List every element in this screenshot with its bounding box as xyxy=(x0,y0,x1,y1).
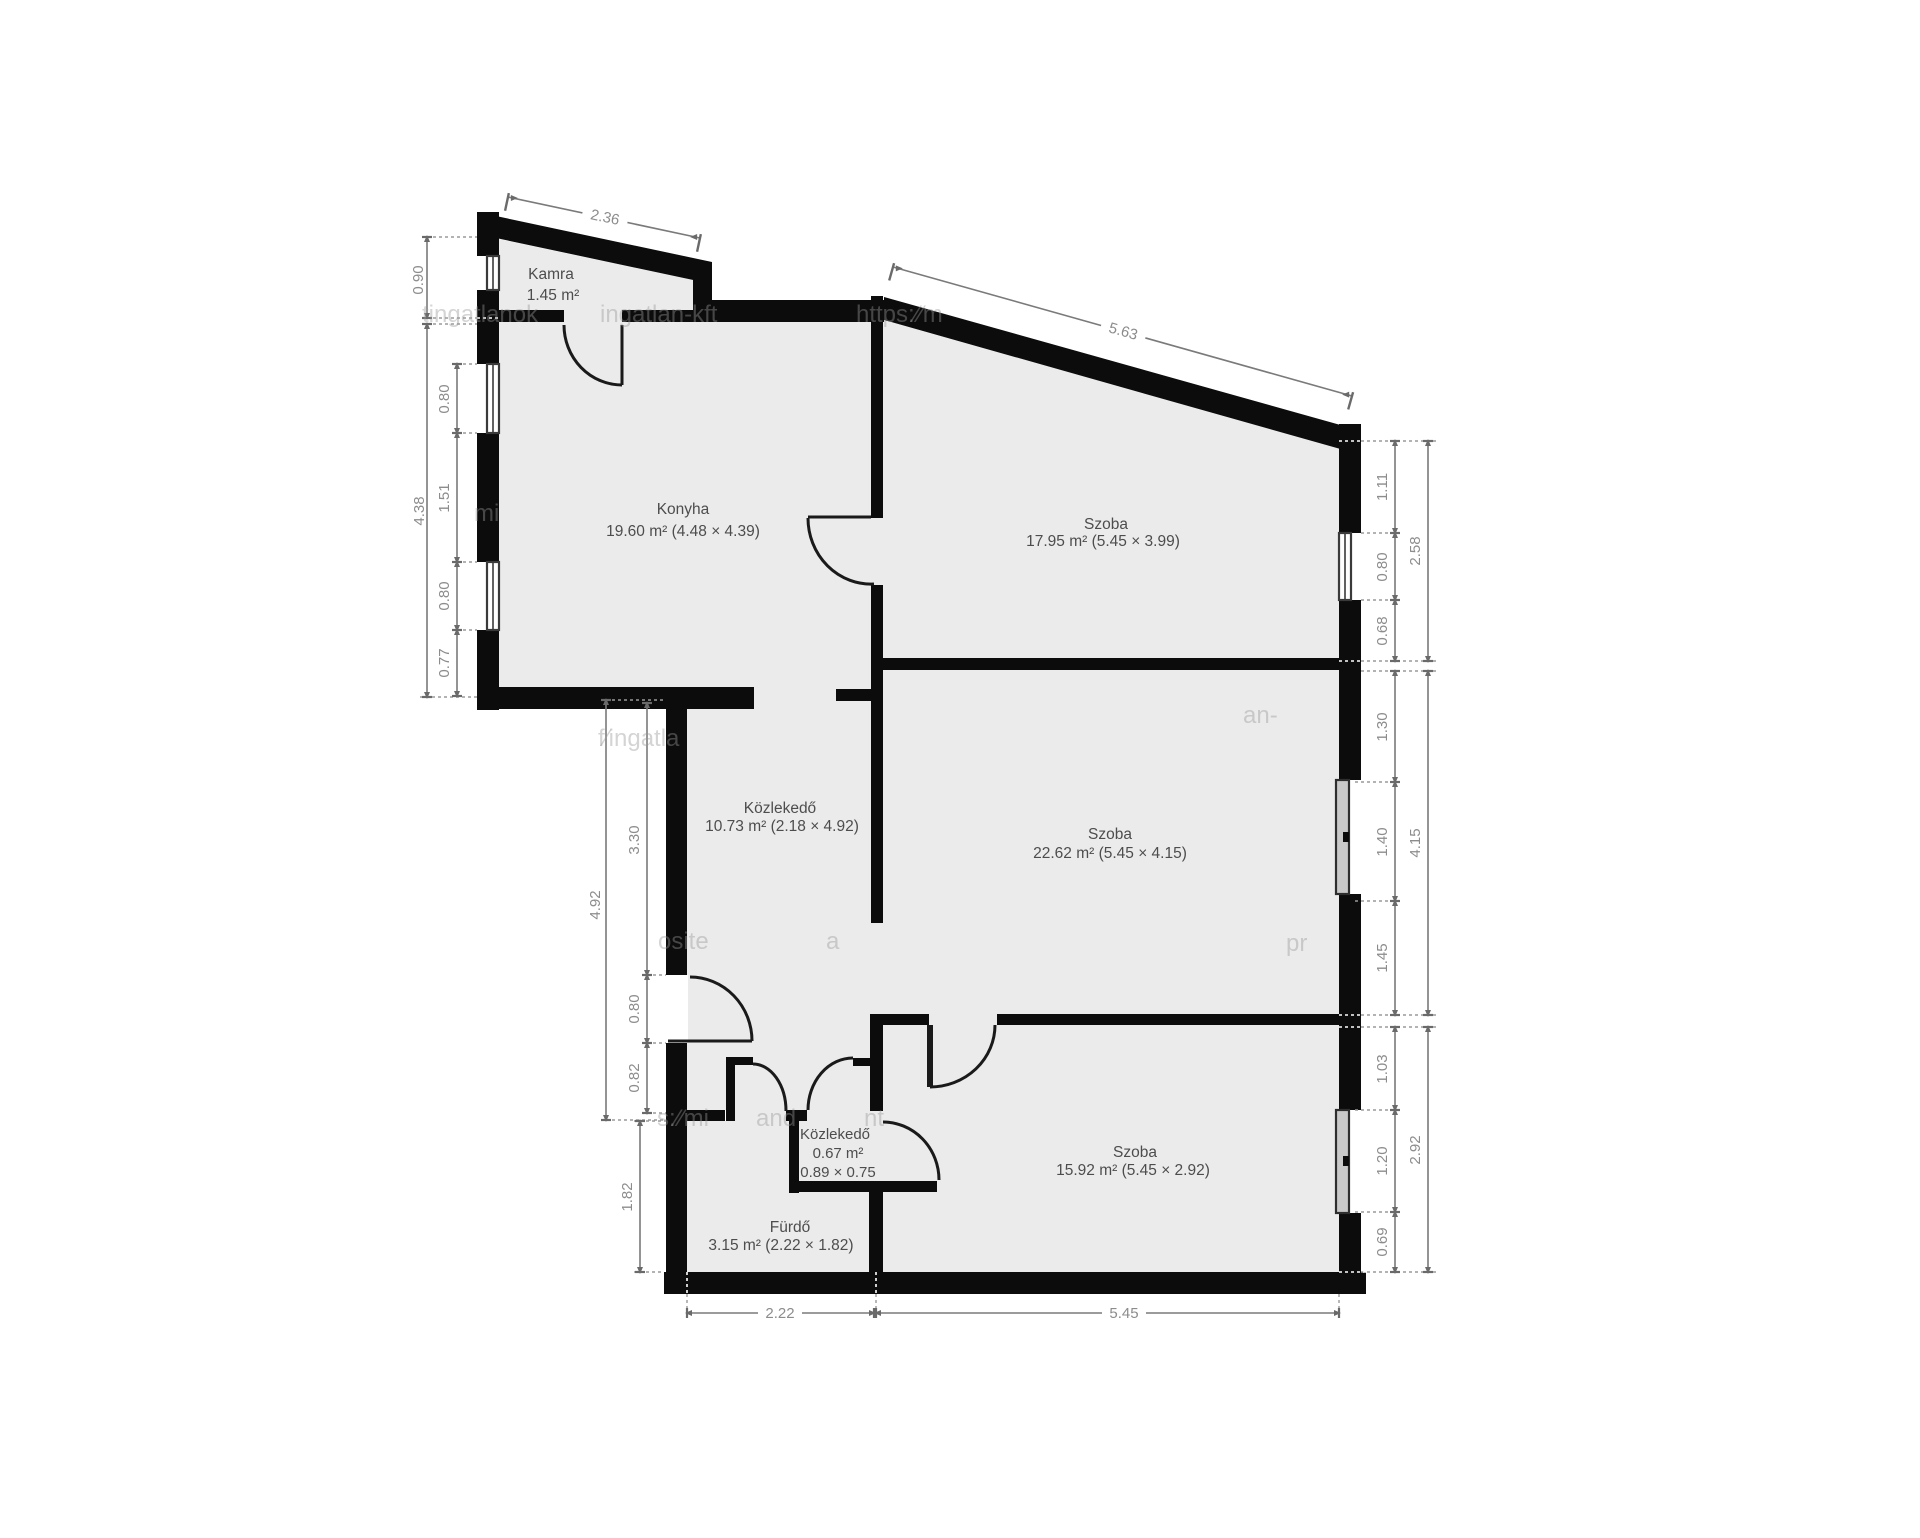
svg-text:and: and xyxy=(756,1105,796,1132)
svg-text:0.80: 0.80 xyxy=(1374,552,1391,581)
svg-text:4.38: 4.38 xyxy=(411,496,428,525)
svg-text:0.77: 0.77 xyxy=(436,648,453,677)
svg-text:17.95 m² (5.45 × 3.99): 17.95 m² (5.45 × 3.99) xyxy=(1026,533,1180,550)
svg-text:ingatlan-kft: ingatlan-kft xyxy=(600,301,718,328)
svg-text:0.82: 0.82 xyxy=(626,1063,643,1092)
svg-text:0.90: 0.90 xyxy=(410,265,427,294)
svg-text:0.89 × 0.75: 0.89 × 0.75 xyxy=(800,1164,875,1181)
svg-text:1.45: 1.45 xyxy=(1374,943,1391,972)
svg-text:3.15 m² (2.22 × 1.82): 3.15 m² (2.22 × 1.82) xyxy=(708,1237,853,1254)
svg-text:0.80: 0.80 xyxy=(436,581,453,610)
svg-text:an-: an- xyxy=(1243,702,1278,729)
svg-text:5.45: 5.45 xyxy=(1109,1305,1138,1322)
svg-text:0.68: 0.68 xyxy=(1374,616,1391,645)
svg-text:22.62 m² (5.45 × 4.15): 22.62 m² (5.45 × 4.15) xyxy=(1033,845,1187,862)
svg-text:tingatlanok: tingatlanok xyxy=(422,301,539,328)
svg-text:2.22: 2.22 xyxy=(765,1305,794,1322)
svg-text:1.11: 1.11 xyxy=(1374,473,1391,501)
svg-text:1.30: 1.30 xyxy=(1374,712,1391,741)
svg-text:0.80: 0.80 xyxy=(626,994,643,1023)
svg-text:a: a xyxy=(826,928,840,955)
svg-text:Fürdő: Fürdő xyxy=(770,1219,811,1236)
svg-text:0.80: 0.80 xyxy=(436,384,453,413)
svg-text:Konyha: Konyha xyxy=(657,501,710,518)
svg-text:Szoba: Szoba xyxy=(1084,516,1128,533)
svg-text:2.92: 2.92 xyxy=(1407,1135,1424,1164)
svg-text:https:∕∕m: https:∕∕m xyxy=(856,301,943,328)
svg-text:19.60 m² (4.48 × 4.39): 19.60 m² (4.48 × 4.39) xyxy=(606,523,760,540)
svg-text:10.73 m² (2.18 × 4.92): 10.73 m² (2.18 × 4.92) xyxy=(705,818,859,835)
svg-text:Szoba: Szoba xyxy=(1113,1144,1157,1161)
svg-text:Kamra: Kamra xyxy=(528,266,574,283)
svg-text:osite: osite xyxy=(658,928,709,955)
svg-text:1.03: 1.03 xyxy=(1374,1054,1391,1083)
svg-text:pr: pr xyxy=(1286,930,1307,957)
svg-text:nt: nt xyxy=(864,1105,884,1132)
svg-text:s:∕∕mi: s:∕∕mi xyxy=(657,1105,709,1132)
svg-text:mi: mi xyxy=(474,500,499,527)
svg-text:2.58: 2.58 xyxy=(1407,536,1424,565)
svg-text:0.69: 0.69 xyxy=(1374,1227,1391,1256)
svg-text:Közlekedő: Közlekedő xyxy=(744,800,816,817)
svg-text:0.67 m²: 0.67 m² xyxy=(813,1145,864,1162)
svg-text:1.40: 1.40 xyxy=(1374,827,1391,856)
svg-text:15.92 m² (5.45 × 2.92): 15.92 m² (5.45 × 2.92) xyxy=(1056,1162,1210,1179)
svg-text:1.51: 1.51 xyxy=(436,483,453,512)
svg-text:4.15: 4.15 xyxy=(1407,828,1424,857)
svg-text:1.20: 1.20 xyxy=(1374,1146,1391,1175)
svg-text:4.92: 4.92 xyxy=(587,890,604,919)
svg-text:Szoba: Szoba xyxy=(1088,826,1132,843)
svg-text:3.30: 3.30 xyxy=(626,825,643,854)
svg-text:Közlekedő: Közlekedő xyxy=(800,1126,870,1143)
svg-text:1.82: 1.82 xyxy=(619,1182,636,1211)
svg-text:f∕ingatla: f∕ingatla xyxy=(598,725,680,752)
